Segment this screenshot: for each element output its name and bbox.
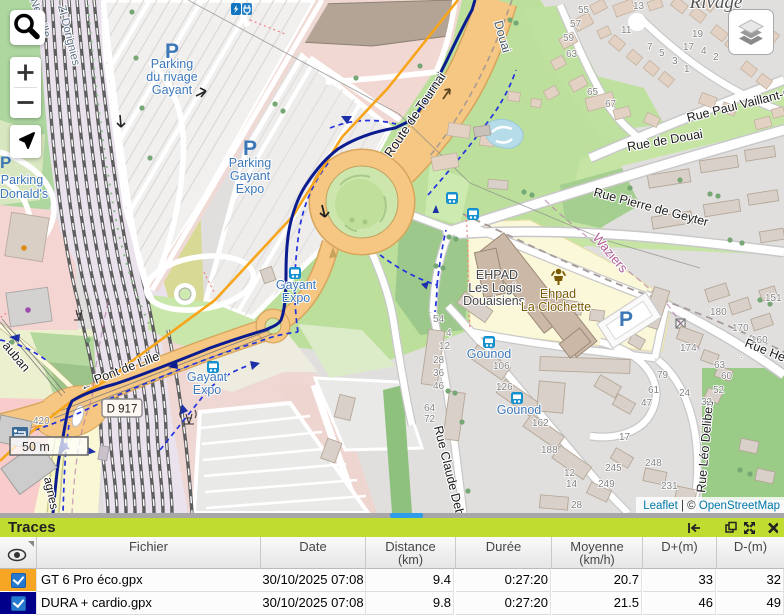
svg-text:Gayant: Gayant (276, 278, 317, 292)
svg-text:Leaflet | © OpenStreetMap: Leaflet | © OpenStreetMap (643, 500, 780, 512)
svg-text:EHPAD: EHPAD (476, 268, 518, 282)
svg-text:54: 54 (433, 314, 445, 325)
svg-text:24: 24 (679, 388, 691, 399)
svg-text:188: 188 (541, 445, 558, 456)
svg-text:Gayant: Gayant (187, 370, 228, 384)
svg-text:P: P (619, 308, 633, 331)
svg-text:174: 174 (680, 343, 697, 354)
svg-text:7: 7 (647, 42, 653, 53)
svg-text:47: 47 (641, 398, 653, 409)
svg-text:Ehpad: Ehpad (540, 287, 576, 301)
svg-text:La Clochette: La Clochette (521, 300, 591, 314)
svg-text:Gounod: Gounod (467, 347, 512, 361)
svg-text:13: 13 (633, 1, 645, 12)
svg-text:245: 245 (605, 463, 622, 474)
svg-text:Gayant: Gayant (152, 83, 193, 97)
svg-text:4: 4 (446, 328, 452, 339)
svg-text:160: 160 (751, 335, 768, 346)
svg-text:28: 28 (433, 355, 445, 366)
svg-text:du rivage: du rivage (146, 70, 197, 84)
svg-text:Expo: Expo (193, 383, 222, 397)
svg-text:Gayant: Gayant (230, 169, 271, 183)
svg-text:151: 151 (765, 293, 782, 304)
svg-text:19: 19 (692, 29, 704, 40)
svg-text:Parking: Parking (229, 156, 271, 170)
svg-text:60: 60 (721, 371, 733, 382)
svg-text:17: 17 (683, 42, 695, 53)
svg-text:126: 126 (496, 382, 513, 393)
svg-text:1: 1 (684, 64, 690, 75)
svg-text:12: 12 (564, 468, 576, 479)
svg-text:248: 248 (645, 458, 662, 469)
svg-text:180: 180 (710, 307, 727, 318)
svg-text:28: 28 (571, 500, 583, 511)
svg-text:55: 55 (578, 5, 590, 16)
svg-text:420: 420 (33, 416, 50, 427)
svg-text:59: 59 (563, 33, 575, 44)
svg-text:Expo: Expo (236, 182, 265, 196)
svg-text:4: 4 (701, 46, 707, 57)
svg-text:32: 32 (701, 397, 713, 408)
svg-text:249: 249 (598, 479, 615, 490)
svg-text:61: 61 (648, 385, 660, 396)
svg-text:79: 79 (657, 370, 669, 381)
svg-text:12: 12 (439, 341, 451, 352)
svg-text:170: 170 (732, 323, 749, 334)
svg-text:36: 36 (433, 368, 445, 379)
svg-text:Douaisiens: Douaisiens (463, 294, 525, 308)
svg-text:52: 52 (713, 385, 725, 396)
svg-text:D 917: D 917 (107, 404, 138, 416)
svg-text:5: 5 (659, 48, 665, 59)
svg-text:11: 11 (621, 25, 632, 36)
svg-text:231: 231 (661, 481, 678, 492)
svg-text:·: · (740, 352, 743, 363)
svg-text:2: 2 (713, 52, 719, 63)
svg-text:63: 63 (714, 360, 726, 371)
svg-text:Les Logis: Les Logis (468, 281, 522, 295)
svg-text:57: 57 (570, 19, 582, 30)
svg-text:Parking: Parking (1, 173, 43, 187)
svg-text:50 m: 50 m (22, 440, 50, 454)
svg-text:72: 72 (424, 414, 436, 425)
svg-text:Gounod: Gounod (497, 403, 542, 417)
svg-text:46: 46 (433, 381, 445, 392)
svg-text:17: 17 (619, 432, 631, 443)
svg-text:Parking: Parking (151, 57, 193, 71)
svg-text:162: 162 (532, 418, 549, 429)
svg-text:Donald's: Donald's (0, 187, 48, 201)
svg-text:67: 67 (605, 99, 617, 110)
svg-text:106: 106 (493, 361, 510, 372)
svg-text:Expo: Expo (282, 291, 311, 305)
svg-text:14: 14 (566, 479, 578, 490)
svg-text:3: 3 (672, 56, 678, 67)
svg-text:64: 64 (424, 403, 436, 414)
svg-text:65: 65 (587, 87, 599, 98)
svg-text:63: 63 (566, 49, 578, 60)
